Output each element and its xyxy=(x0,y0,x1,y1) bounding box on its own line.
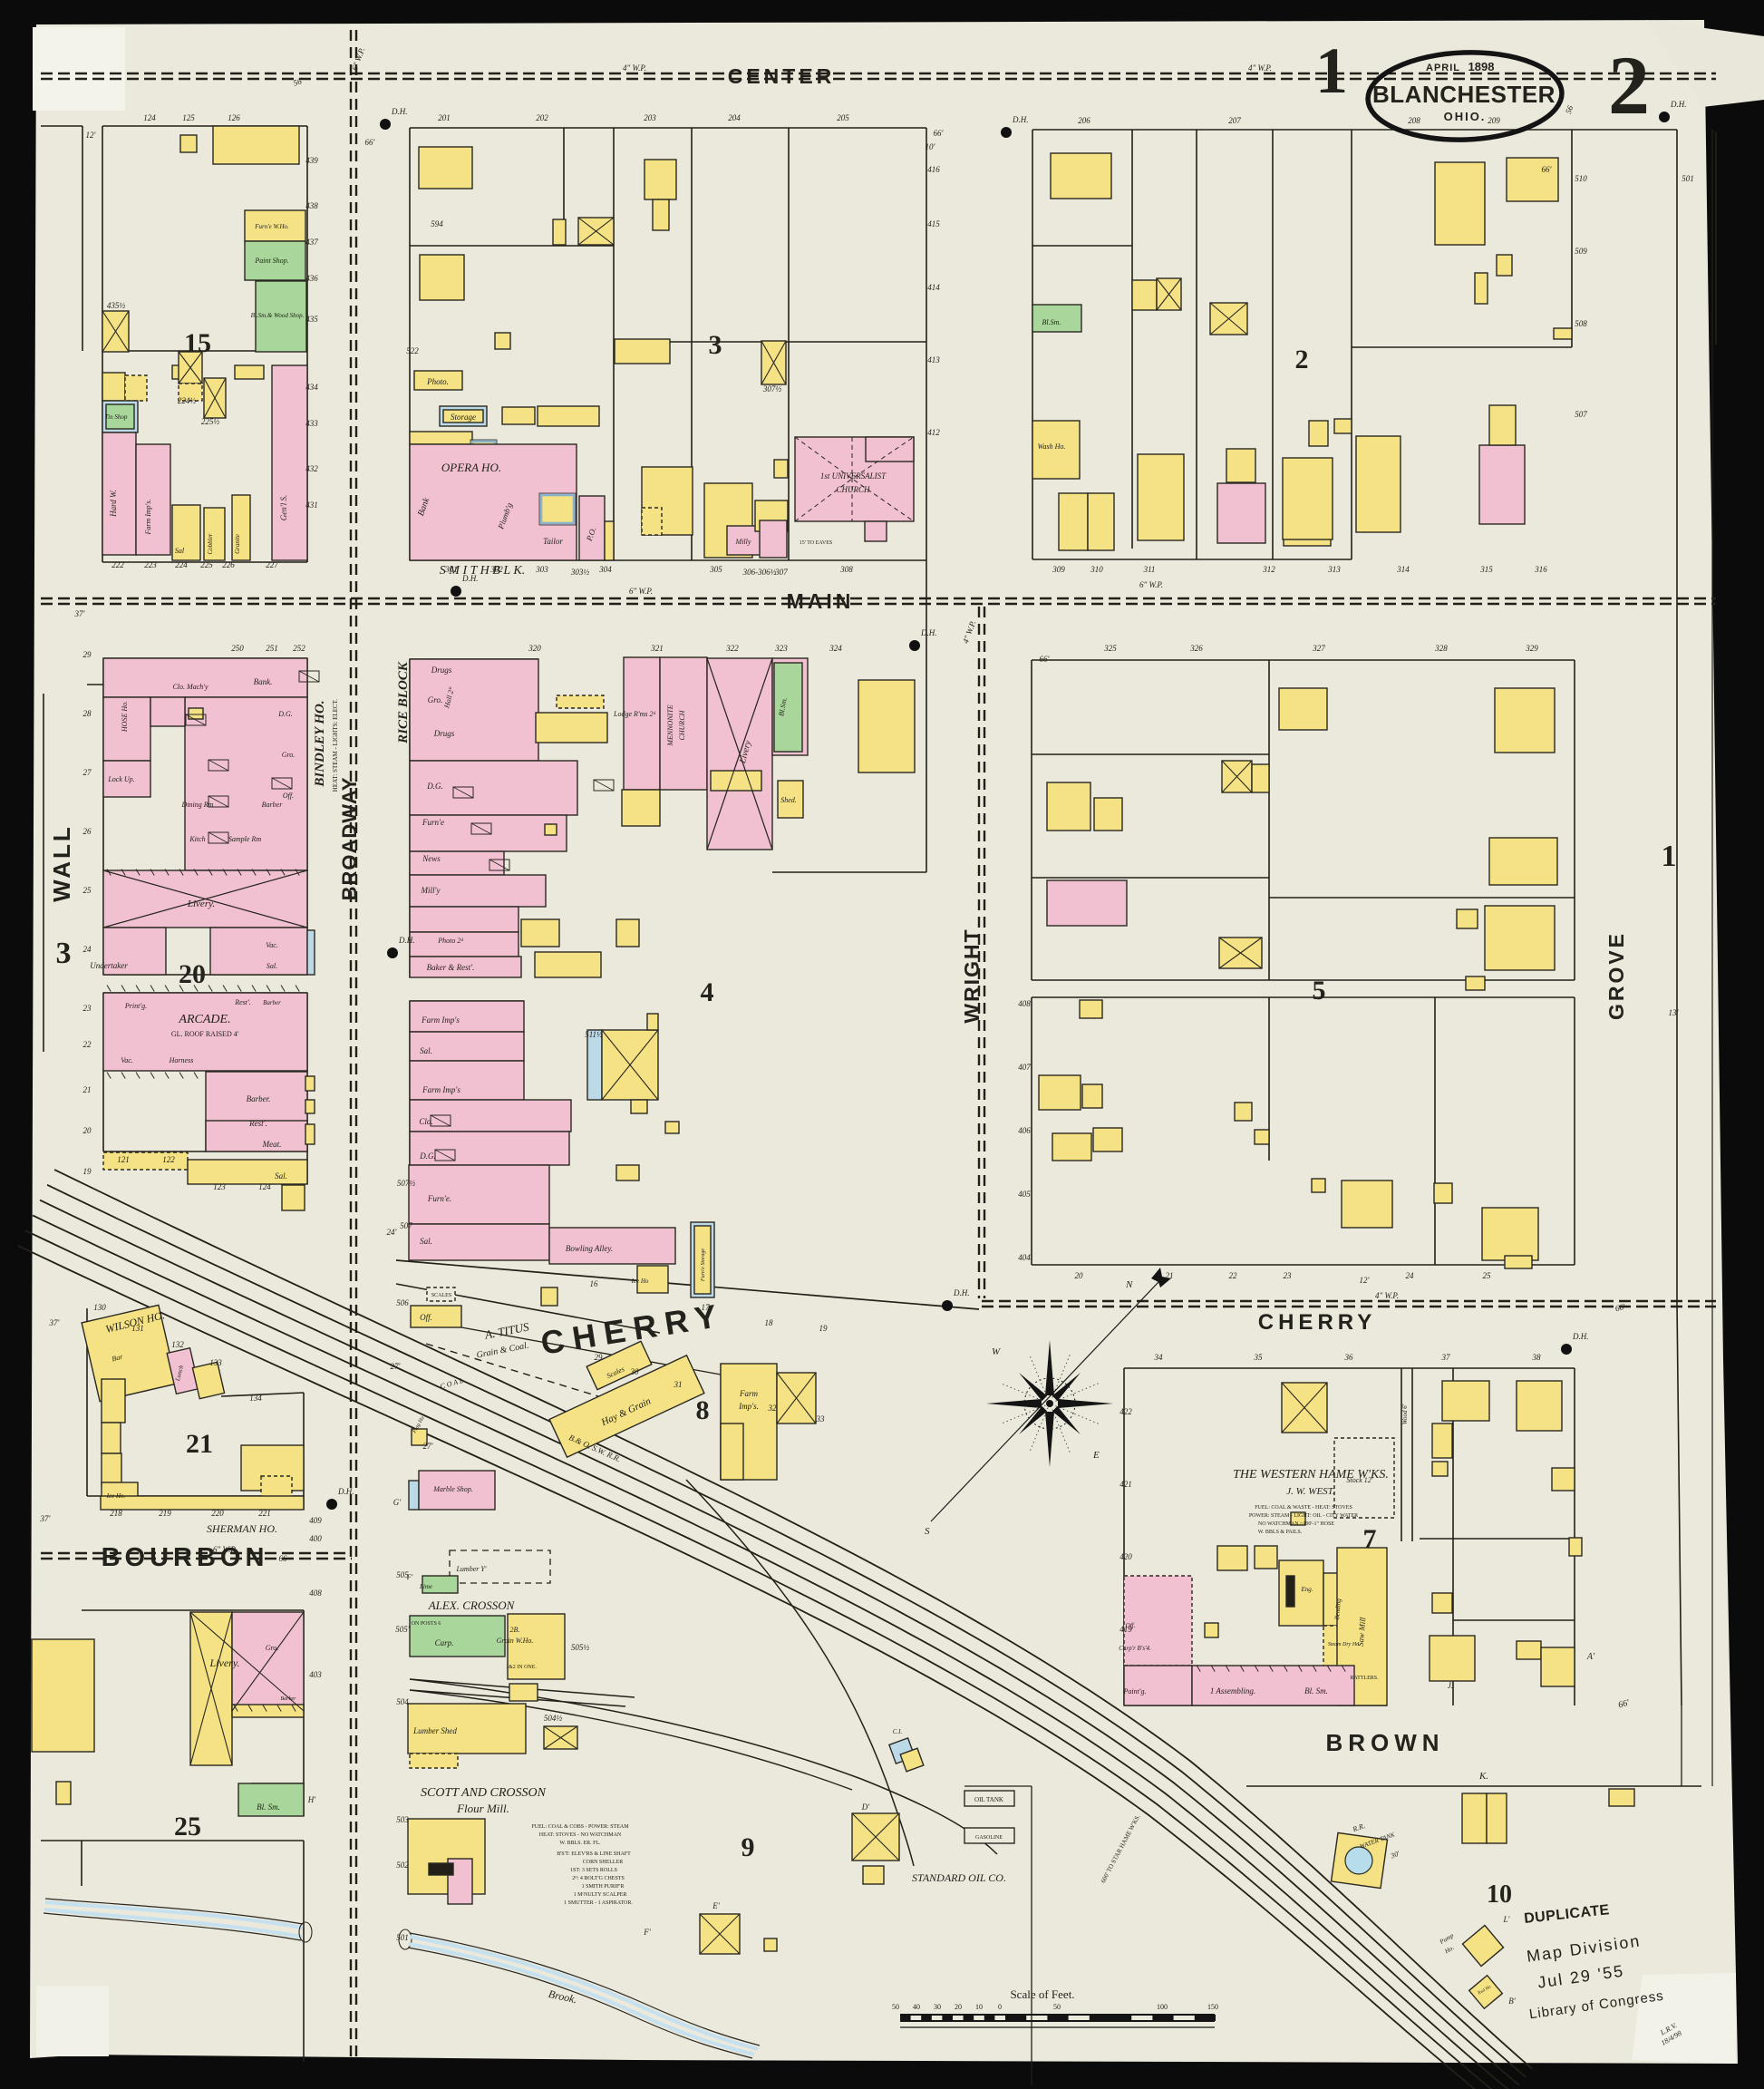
svg-text:D.H.: D.H. xyxy=(391,107,408,116)
svg-text:D.H.: D.H. xyxy=(1670,100,1687,109)
svg-text:26: 26 xyxy=(83,827,92,836)
svg-text:Bl. Sm.: Bl. Sm. xyxy=(257,1802,280,1812)
svg-text:Livery.: Livery. xyxy=(187,899,215,909)
svg-text:Stock 12': Stock 12' xyxy=(1346,1476,1372,1484)
svg-text:37': 37' xyxy=(49,1318,61,1327)
svg-text:27: 27 xyxy=(83,768,92,777)
svg-text:W: W xyxy=(992,1346,1001,1357)
svg-text:Carp'r B's'4.: Carp'r B's'4. xyxy=(1119,1645,1151,1652)
svg-text:125: 125 xyxy=(182,113,195,122)
svg-text:124: 124 xyxy=(143,113,156,122)
svg-text:J.: J. xyxy=(1448,1681,1453,1690)
svg-text:31: 31 xyxy=(674,1380,683,1389)
svg-text:Ice Ho: Ice Ho xyxy=(631,1278,649,1285)
svg-text:GL. ROOF RAISED 4': GL. ROOF RAISED 4' xyxy=(171,1030,239,1038)
svg-text:Farm: Farm xyxy=(739,1389,759,1398)
svg-text:150: 150 xyxy=(1207,2003,1218,2011)
svg-text:1 SMITH PURIF'R: 1 SMITH PURIF'R xyxy=(582,1884,625,1890)
svg-text:594: 594 xyxy=(431,219,443,228)
svg-text:0: 0 xyxy=(998,2003,1002,2011)
svg-text:Carp.: Carp. xyxy=(435,1638,454,1647)
svg-text:412: 412 xyxy=(927,428,940,437)
svg-text:Bowling Alley.: Bowling Alley. xyxy=(566,1244,613,1253)
svg-text:FUEL: COAL & COBS - POWER: STE: FUEL: COAL & COBS - POWER: STEAM xyxy=(531,1824,629,1830)
svg-text:220: 220 xyxy=(211,1509,224,1518)
svg-text:504: 504 xyxy=(396,1697,409,1706)
svg-text:436: 436 xyxy=(305,274,318,283)
svg-text:Eng.: Eng. xyxy=(1300,1586,1313,1593)
svg-text:B'S'T: ELEV'RS & LINE SHAFT: B'S'T: ELEV'RS & LINE SHAFT xyxy=(557,1851,631,1857)
svg-text:224: 224 xyxy=(175,560,188,569)
svg-text:Lumber Shed: Lumber Shed xyxy=(412,1726,457,1735)
svg-text:420: 420 xyxy=(1119,1552,1132,1561)
svg-text:HOSE Ho.: HOSE Ho. xyxy=(121,701,129,733)
svg-text:315: 315 xyxy=(1479,565,1493,574)
svg-text:313: 313 xyxy=(1327,565,1341,574)
svg-text:Gen'l S.: Gen'l S. xyxy=(279,495,288,520)
svg-text:100: 100 xyxy=(1157,2003,1168,2011)
svg-text:30: 30 xyxy=(934,2003,941,2011)
svg-text:502: 502 xyxy=(396,1861,409,1870)
svg-text:303½: 303½ xyxy=(570,568,590,577)
svg-text:Bl.Sm.: Bl.Sm. xyxy=(1042,318,1061,326)
svg-text:132: 132 xyxy=(171,1340,184,1349)
svg-text:D.G.: D.G. xyxy=(426,782,443,791)
svg-text:328: 328 xyxy=(1434,644,1448,653)
svg-text:326: 326 xyxy=(1189,644,1203,653)
svg-text:301: 301 xyxy=(444,565,458,574)
svg-text:OHIO.: OHIO. xyxy=(1444,110,1487,123)
svg-text:Dining Rm: Dining Rm xyxy=(181,801,214,809)
svg-text:Tailor: Tailor xyxy=(543,537,563,546)
svg-text:F': F' xyxy=(643,1928,651,1937)
svg-text:201: 201 xyxy=(438,113,451,122)
svg-text:E': E' xyxy=(712,1901,720,1910)
svg-text:Barber: Barber xyxy=(281,1696,297,1702)
svg-text:1: 1 xyxy=(1315,34,1348,107)
svg-text:203: 203 xyxy=(644,113,656,122)
svg-text:WALL: WALL xyxy=(48,824,75,902)
svg-text:320: 320 xyxy=(528,644,541,653)
svg-text:122: 122 xyxy=(162,1155,175,1164)
svg-text:509: 509 xyxy=(1575,247,1587,256)
svg-text:225: 225 xyxy=(200,560,213,569)
svg-text:HEAT: STEAM - LIGHTS: ELECT.: HEAT: STEAM - LIGHTS: ELECT. xyxy=(332,699,339,792)
svg-text:307: 307 xyxy=(774,568,788,577)
svg-text:24: 24 xyxy=(83,945,92,954)
svg-text:4: 4 xyxy=(701,977,714,1007)
svg-text:Furn'e Storage: Furn'e Storage xyxy=(701,1249,706,1282)
svg-text:GROVE: GROVE xyxy=(1604,931,1628,1020)
svg-text:33: 33 xyxy=(816,1414,826,1423)
svg-text:414: 414 xyxy=(927,283,940,292)
svg-text:BROWN: BROWN xyxy=(1325,1729,1444,1756)
svg-text:21: 21 xyxy=(186,1429,213,1459)
svg-text:66': 66' xyxy=(365,138,376,147)
svg-text:10': 10' xyxy=(926,142,936,151)
svg-text:218: 218 xyxy=(110,1509,122,1518)
svg-text:37': 37' xyxy=(74,609,86,618)
svg-text:507½: 507½ xyxy=(397,1179,416,1188)
svg-text:38: 38 xyxy=(1532,1353,1542,1362)
svg-text:Barber: Barber xyxy=(263,999,281,1006)
svg-text:505': 505' xyxy=(395,1625,411,1634)
svg-text:Hard W.: Hard W. xyxy=(109,490,118,518)
svg-text:421: 421 xyxy=(1119,1480,1132,1489)
svg-text:1: 1 xyxy=(1662,840,1677,873)
svg-text:B': B' xyxy=(1508,1997,1516,2006)
svg-text:225½: 225½ xyxy=(201,417,220,426)
svg-text:9: 9 xyxy=(741,1832,755,1862)
svg-text:408: 408 xyxy=(309,1589,322,1598)
svg-text:432: 432 xyxy=(305,464,318,473)
svg-text:Imp's.: Imp's. xyxy=(738,1402,759,1411)
svg-text:BROADWAY: BROADWAY xyxy=(338,777,361,901)
svg-text:25: 25 xyxy=(1483,1271,1492,1280)
svg-text:304: 304 xyxy=(598,565,612,574)
svg-text:222: 222 xyxy=(111,560,124,569)
svg-text:227: 227 xyxy=(266,560,278,569)
svg-text:21: 21 xyxy=(83,1085,92,1094)
svg-text:Grain W.Ho.: Grain W.Ho. xyxy=(497,1637,534,1645)
svg-text:20: 20 xyxy=(1075,1271,1084,1280)
svg-text:130: 130 xyxy=(93,1303,106,1312)
svg-text:202: 202 xyxy=(536,113,548,122)
svg-text:409: 409 xyxy=(309,1516,322,1525)
svg-text:1&2 IN ONE.: 1&2 IN ONE. xyxy=(506,1665,537,1670)
svg-text:Mill'y: Mill'y xyxy=(421,886,441,895)
svg-text:50: 50 xyxy=(892,2003,899,2011)
svg-text:WRIGHT: WRIGHT xyxy=(960,928,984,1023)
svg-text:Granite: Granite xyxy=(234,534,241,554)
svg-text:4" W.P.: 4" W.P. xyxy=(1248,63,1272,73)
svg-text:32: 32 xyxy=(768,1404,778,1413)
svg-text:16: 16 xyxy=(590,1279,599,1288)
svg-text:309: 309 xyxy=(1052,565,1065,574)
svg-text:404: 404 xyxy=(1018,1253,1031,1262)
svg-text:419: 419 xyxy=(1119,1625,1132,1634)
svg-text:501: 501 xyxy=(1682,174,1694,183)
svg-text:Furn'e.: Furn'e. xyxy=(427,1194,451,1203)
svg-text:MENNONITE: MENNONITE xyxy=(666,704,674,746)
svg-text:27': 27' xyxy=(391,1362,402,1371)
svg-text:407: 407 xyxy=(1018,1063,1031,1072)
svg-text:BLANCHESTER: BLANCHESTER xyxy=(1372,81,1556,108)
svg-text:40: 40 xyxy=(913,2003,920,2011)
svg-text:Farm Imp's: Farm Imp's xyxy=(422,1085,460,1094)
svg-text:305: 305 xyxy=(709,565,722,574)
svg-text:20: 20 xyxy=(179,959,206,989)
svg-text:Vac.: Vac. xyxy=(266,941,278,949)
svg-text:10: 10 xyxy=(975,2003,983,2011)
svg-text:1ST: 3 SETS ROLLS: 1ST: 3 SETS ROLLS xyxy=(570,1868,617,1873)
svg-text:Photo 2ᵈ: Photo 2ᵈ xyxy=(437,937,463,945)
svg-text:SHERMAN HO.: SHERMAN HO. xyxy=(207,1522,277,1535)
svg-text:327: 327 xyxy=(1312,644,1325,653)
svg-text:Photo.: Photo. xyxy=(426,377,449,386)
svg-text:66: 66 xyxy=(279,1554,288,1563)
svg-text:435: 435 xyxy=(305,315,318,324)
svg-text:Off.: Off. xyxy=(283,792,294,800)
svg-text:L': L' xyxy=(1503,1915,1511,1924)
svg-text:SCALES: SCALES xyxy=(431,1293,451,1298)
svg-text:37': 37' xyxy=(40,1514,52,1523)
svg-text:D.H.: D.H. xyxy=(953,1288,970,1297)
svg-text:1 MᶜNULTY SCALPER: 1 MᶜNULTY SCALPER xyxy=(574,1892,627,1898)
svg-text:Meat.: Meat. xyxy=(262,1140,282,1149)
svg-text:Wood 6': Wood 6' xyxy=(1401,1404,1409,1424)
svg-text:10: 10 xyxy=(1487,1880,1512,1909)
svg-text:311: 311 xyxy=(1143,565,1156,574)
svg-text:Sal.: Sal. xyxy=(267,962,277,970)
svg-text:Lock Up.: Lock Up. xyxy=(107,775,134,783)
svg-text:23: 23 xyxy=(1284,1271,1293,1280)
svg-text:K.: K. xyxy=(1478,1771,1488,1782)
svg-text:CENTER: CENTER xyxy=(728,64,836,88)
svg-text:20: 20 xyxy=(955,2003,962,2011)
svg-text:24: 24 xyxy=(1406,1271,1415,1280)
svg-text:250: 250 xyxy=(231,644,244,653)
svg-text:307½: 307½ xyxy=(762,384,782,394)
svg-text:12': 12' xyxy=(1360,1276,1371,1285)
svg-text:Marble Shop.: Marble Shop. xyxy=(432,1485,473,1493)
svg-text:323: 323 xyxy=(774,644,788,653)
svg-text:324: 324 xyxy=(829,644,842,653)
svg-text:BOURBON: BOURBON xyxy=(102,1543,269,1572)
svg-text:8: 8 xyxy=(696,1395,710,1425)
svg-text:308: 308 xyxy=(839,565,853,574)
svg-text:Tin Shop: Tin Shop xyxy=(105,413,128,421)
svg-text:D.G.: D.G. xyxy=(419,1151,436,1161)
svg-text:405: 405 xyxy=(1018,1190,1031,1199)
svg-text:Flour Mill.: Flour Mill. xyxy=(456,1802,509,1815)
svg-text:312: 312 xyxy=(1262,565,1275,574)
svg-text:Clo.: Clo. xyxy=(419,1117,432,1126)
svg-text:A': A' xyxy=(1586,1652,1595,1662)
svg-text:FUEL: COAL & WASTE - HEAT: STO: FUEL: COAL & WASTE - HEAT: STOVES xyxy=(1255,1505,1352,1511)
svg-text:439: 439 xyxy=(305,156,318,165)
svg-text:224½: 224½ xyxy=(178,396,197,405)
svg-text:Gro.: Gro. xyxy=(282,751,296,759)
svg-text:Storage: Storage xyxy=(451,413,476,422)
svg-text:221: 221 xyxy=(258,1509,271,1518)
svg-text:37: 37 xyxy=(1441,1353,1451,1362)
svg-text:433: 433 xyxy=(305,419,318,428)
svg-text:Livery.: Livery. xyxy=(209,1657,240,1669)
svg-text:413: 413 xyxy=(927,355,940,364)
svg-text:511½: 511½ xyxy=(585,1030,603,1039)
svg-text:5: 5 xyxy=(1313,976,1326,1006)
svg-text:Gro.: Gro. xyxy=(266,1644,279,1652)
svg-text:APRIL: APRIL xyxy=(1426,63,1460,73)
svg-text:503: 503 xyxy=(396,1815,409,1824)
svg-text:2: 2 xyxy=(1608,39,1650,131)
svg-text:34: 34 xyxy=(1154,1353,1164,1362)
svg-text:Print'g.: Print'g. xyxy=(124,1002,147,1010)
svg-text:Drugs: Drugs xyxy=(431,666,452,675)
svg-text:12': 12' xyxy=(86,131,97,140)
svg-text:506: 506 xyxy=(396,1298,409,1307)
svg-text:Sample Rm: Sample Rm xyxy=(228,835,261,843)
svg-text:Harness: Harness xyxy=(169,1056,194,1064)
svg-text:Ice Ho.: Ice Ho. xyxy=(106,1492,126,1500)
svg-text:2ᴰ: 4 BOLT'G CHESTS: 2ᴰ: 4 BOLT'G CHESTS xyxy=(572,1876,625,1881)
svg-text:Furn'e W.Ho.: Furn'e W.Ho. xyxy=(254,223,289,230)
svg-text:Farm Imp's: Farm Imp's xyxy=(421,1015,460,1025)
svg-text:134: 134 xyxy=(249,1394,262,1403)
svg-text:STANDARD OIL CO.: STANDARD OIL CO. xyxy=(912,1871,1006,1884)
svg-text:13': 13' xyxy=(1669,1008,1680,1017)
svg-text:Drugs: Drugs xyxy=(433,729,455,738)
svg-text:Clo. Mach'y: Clo. Mach'y xyxy=(172,683,208,691)
svg-text:507: 507 xyxy=(1575,410,1587,419)
svg-text:Bank.: Bank. xyxy=(254,677,273,686)
svg-text:28: 28 xyxy=(83,709,92,718)
svg-text:3: 3 xyxy=(56,937,72,970)
svg-text:Shed.: Shed. xyxy=(780,796,797,804)
svg-text:HEAT: STOVES - NO WATCHMAN: HEAT: STOVES - NO WATCHMAN xyxy=(539,1832,622,1838)
svg-text:ON POSTS 6: ON POSTS 6 xyxy=(412,1621,441,1627)
svg-text:15' TO EAVES: 15' TO EAVES xyxy=(800,540,832,546)
svg-text:408: 408 xyxy=(1018,999,1031,1008)
svg-text:W. BBLS. ER. FL.: W. BBLS. ER. FL. xyxy=(559,1841,601,1846)
svg-text:7: 7 xyxy=(1363,1524,1377,1554)
svg-text:Lodge R'ms 2ᵈ: Lodge R'ms 2ᵈ xyxy=(613,710,655,718)
svg-text:223: 223 xyxy=(144,560,157,569)
svg-text:30: 30 xyxy=(630,1367,640,1376)
svg-text:2B.: 2B. xyxy=(510,1626,520,1634)
svg-text:Barber.: Barber. xyxy=(247,1094,271,1103)
svg-text:D.H.: D.H. xyxy=(920,628,937,637)
svg-text:CHERRY: CHERRY xyxy=(1258,1310,1376,1335)
svg-text:205: 205 xyxy=(837,113,849,122)
svg-text:4" W.P.: 4" W.P. xyxy=(1375,1291,1399,1300)
svg-text:19: 19 xyxy=(819,1324,829,1333)
svg-text:507: 507 xyxy=(400,1221,412,1230)
svg-text:123: 123 xyxy=(213,1182,226,1191)
svg-text:431: 431 xyxy=(305,500,318,510)
svg-text:W. BBLS & PAILS.: W. BBLS & PAILS. xyxy=(1258,1530,1303,1535)
svg-text:6" W.P.: 6" W.P. xyxy=(213,1545,237,1554)
svg-text:CHURCH: CHURCH xyxy=(836,485,870,494)
svg-text:1898: 1898 xyxy=(1468,60,1495,73)
svg-text:66': 66' xyxy=(1542,165,1553,174)
svg-text:22: 22 xyxy=(1229,1271,1238,1280)
svg-text:131: 131 xyxy=(131,1324,144,1333)
svg-text:1 SMUTTER - 1 ASPIRATOR.: 1 SMUTTER - 1 ASPIRATOR. xyxy=(564,1900,633,1906)
svg-text:Paint'g.: Paint'g. xyxy=(1122,1687,1146,1695)
svg-text:Gro.: Gro. xyxy=(428,695,442,704)
svg-text:D': D' xyxy=(861,1802,870,1812)
svg-text:Sal.: Sal. xyxy=(420,1046,432,1055)
svg-text:29: 29 xyxy=(595,1353,604,1362)
svg-text:415: 415 xyxy=(927,219,940,228)
svg-text:66': 66' xyxy=(934,129,945,138)
svg-text:17: 17 xyxy=(702,1303,711,1312)
svg-text:206: 206 xyxy=(1078,116,1090,125)
svg-text:BINDLEY HO.: BINDLEY HO. xyxy=(313,700,327,787)
svg-text:23: 23 xyxy=(83,1004,92,1013)
svg-text:25: 25 xyxy=(174,1812,201,1841)
svg-text:403: 403 xyxy=(309,1670,322,1679)
svg-text:406: 406 xyxy=(1018,1126,1031,1135)
svg-text:510: 510 xyxy=(1575,174,1587,183)
svg-text:SCOTT AND CROSSON: SCOTT AND CROSSON xyxy=(421,1786,547,1800)
svg-text:J. W. WEST.: J. W. WEST. xyxy=(1286,1486,1334,1497)
svg-text:505: 505 xyxy=(396,1570,409,1579)
svg-text:416: 416 xyxy=(927,165,940,174)
svg-text:22: 22 xyxy=(83,1040,92,1049)
svg-text:19: 19 xyxy=(83,1167,92,1176)
svg-text:Cobbler: Cobbler xyxy=(207,533,214,554)
svg-text:306-306½: 306-306½ xyxy=(742,568,777,577)
svg-text:1st UNIVERSALIST: 1st UNIVERSALIST xyxy=(820,471,887,481)
svg-text:Paint Shop.: Paint Shop. xyxy=(254,257,288,265)
svg-text:438: 438 xyxy=(305,201,318,210)
svg-text:Furn'e: Furn'e xyxy=(422,818,444,827)
svg-text:Bl. Sm.: Bl. Sm. xyxy=(1304,1686,1328,1695)
svg-text:251: 251 xyxy=(266,644,278,653)
svg-text:508: 508 xyxy=(1575,319,1587,328)
svg-text:D.G.: D.G. xyxy=(277,710,293,718)
svg-text:219: 219 xyxy=(159,1509,171,1518)
svg-text:21: 21 xyxy=(1166,1271,1174,1280)
svg-text:302: 302 xyxy=(489,565,503,574)
svg-text:Scale of Feet.: Scale of Feet. xyxy=(1010,1987,1074,2001)
svg-text:Sal.: Sal. xyxy=(420,1237,432,1246)
svg-text:121: 121 xyxy=(117,1155,130,1164)
svg-text:Farm Imp's.: Farm Imp's. xyxy=(144,499,152,535)
svg-text:505½: 505½ xyxy=(571,1643,590,1652)
svg-text:C.I.: C.I. xyxy=(893,1728,903,1735)
svg-text:E: E xyxy=(1092,1450,1100,1461)
svg-text:504½: 504½ xyxy=(544,1714,563,1723)
svg-text:CHURCH: CHURCH xyxy=(678,709,686,740)
svg-text:422: 422 xyxy=(1119,1407,1132,1416)
svg-text:434: 434 xyxy=(305,383,318,392)
svg-text:CORN SHELLER: CORN SHELLER xyxy=(583,1860,624,1865)
svg-text:MAIN: MAIN xyxy=(787,589,855,613)
svg-text:Lime: Lime xyxy=(419,1583,432,1590)
svg-text:Sal.: Sal. xyxy=(275,1171,287,1181)
svg-text:D.H.: D.H. xyxy=(337,1487,354,1496)
svg-text:OPERA HO.: OPERA HO. xyxy=(441,461,501,474)
svg-text:Bl.Sm.& Wood Shop.: Bl.Sm.& Wood Shop. xyxy=(251,312,305,319)
svg-text:Rest'.: Rest'. xyxy=(248,1119,267,1128)
svg-text:50: 50 xyxy=(1053,2003,1061,2011)
svg-text:329: 329 xyxy=(1525,644,1538,653)
svg-text:25: 25 xyxy=(83,886,92,895)
svg-text:314: 314 xyxy=(1396,565,1410,574)
svg-text:Steam Dry Ho: Steam Dry Ho xyxy=(1328,1642,1359,1647)
svg-text:4" W.P.: 4" W.P. xyxy=(623,63,646,73)
svg-text:207: 207 xyxy=(1228,116,1241,125)
svg-text:Milly: Milly xyxy=(735,538,751,546)
svg-text:Barber: Barber xyxy=(262,801,284,809)
svg-text:252: 252 xyxy=(293,644,305,653)
svg-text:D.H.: D.H. xyxy=(1012,115,1029,124)
svg-text:20: 20 xyxy=(83,1126,92,1135)
svg-text:POWER: STEAM - LIGHT: OIL - CI: POWER: STEAM - LIGHT: OIL - CITY WATER xyxy=(1249,1513,1358,1519)
svg-text:Vac.: Vac. xyxy=(121,1056,133,1064)
svg-text:321: 321 xyxy=(650,644,664,653)
svg-text:Rest'.: Rest'. xyxy=(234,998,250,1006)
svg-text:News: News xyxy=(422,854,441,863)
svg-text:303: 303 xyxy=(535,565,548,574)
svg-text:36: 36 xyxy=(1344,1353,1354,1362)
svg-text:6" W.P.: 6" W.P. xyxy=(629,587,653,596)
svg-text:204: 204 xyxy=(728,113,741,122)
